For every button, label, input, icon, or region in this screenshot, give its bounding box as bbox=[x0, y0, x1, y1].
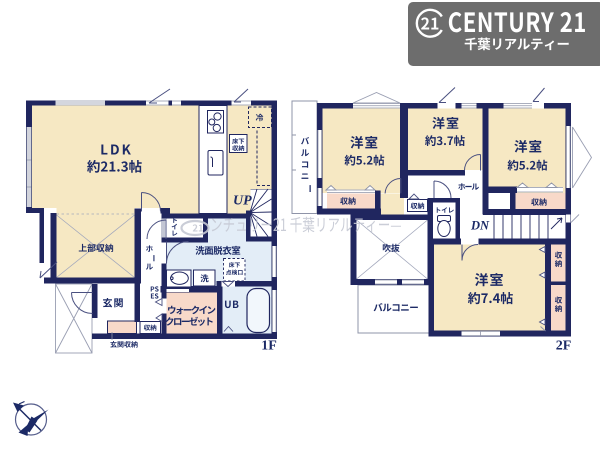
svg-text:2F: 2F bbox=[556, 339, 572, 354]
svg-text:UP: UP bbox=[233, 194, 252, 209]
svg-text:DN: DN bbox=[470, 219, 490, 233]
svg-text:1F: 1F bbox=[261, 339, 277, 354]
